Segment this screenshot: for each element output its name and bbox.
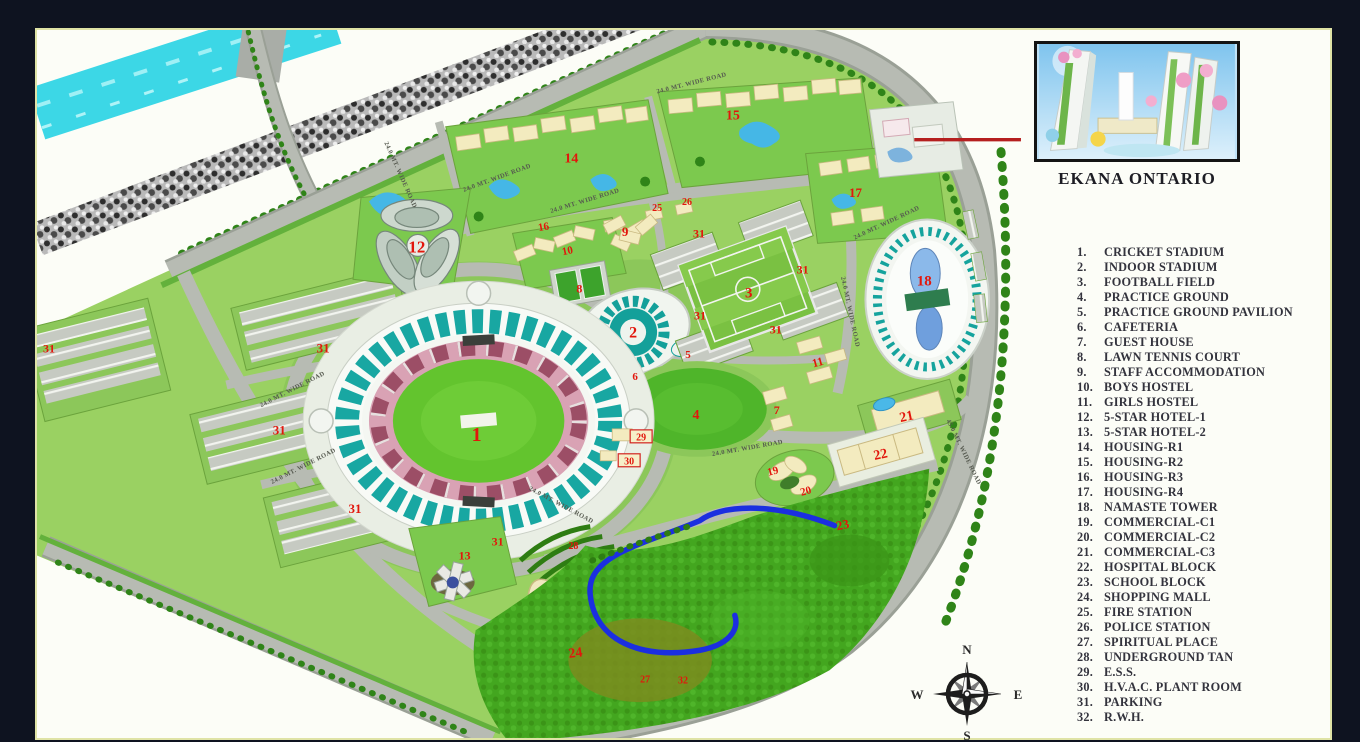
compass-east-label: E: [1014, 687, 1023, 702]
legend-item-number: 25.: [1077, 605, 1104, 620]
legend-item-number: 14.: [1077, 440, 1104, 455]
compass-rose: N S W E: [910, 640, 1025, 742]
map-marker-31: 31: [492, 535, 504, 549]
map-marker-28: 28: [568, 541, 578, 552]
legend-item-number: 32.: [1077, 710, 1104, 725]
legend-item: 1.CRICKET STADIUM: [1077, 245, 1327, 260]
map-marker-24: 24: [568, 645, 584, 662]
map-marker-26: 26: [682, 197, 692, 208]
map-marker-29: 29: [636, 432, 646, 443]
legend-item: 6.CAFETERIA: [1077, 320, 1327, 335]
legend-item: 18.NAMASTE TOWER: [1077, 500, 1327, 515]
map-marker-31: 31: [770, 322, 782, 336]
legend-item-number: 27.: [1077, 635, 1104, 650]
legend-item-label: GIRLS HOSTEL: [1104, 395, 1327, 410]
legend-item: 20.COMMERCIAL-C2: [1077, 530, 1327, 545]
legend-item-number: 12.: [1077, 410, 1104, 425]
compass-north-label: N: [962, 642, 972, 657]
legend-item-label: HOUSING-R4: [1104, 485, 1327, 500]
legend-item-number: 9.: [1077, 365, 1104, 380]
legend-item-number: 2.: [1077, 260, 1104, 275]
legend-item-number: 21.: [1077, 545, 1104, 560]
legend-item-label: SPIRITUAL PLACE: [1104, 635, 1327, 650]
map-marker-32: 32: [678, 676, 688, 687]
legend-item: 31.PARKING: [1077, 695, 1327, 710]
legend-item: 32.R.W.H.: [1077, 710, 1327, 725]
legend-item: 5.PRACTICE GROUND PAVILION: [1077, 305, 1327, 320]
legend-item: 12.5-STAR HOTEL-1: [1077, 410, 1327, 425]
legend-item: 21.COMMERCIAL-C3: [1077, 545, 1327, 560]
map-marker-31: 31: [797, 263, 809, 277]
map-marker-31: 31: [317, 341, 330, 356]
legend-item: 28.UNDERGROUND TAN: [1077, 650, 1327, 665]
legend-item-number: 23.: [1077, 575, 1104, 590]
legend-item-number: 10.: [1077, 380, 1104, 395]
legend-item: 9.STAFF ACCOMMODATION: [1077, 365, 1327, 380]
legend-item-label: E.S.S.: [1104, 665, 1327, 680]
legend-item: 16.HOUSING-R3: [1077, 470, 1327, 485]
map-marker-1: 1: [472, 424, 482, 446]
legend-item-number: 15.: [1077, 455, 1104, 470]
legend-item: 29.E.S.S.: [1077, 665, 1327, 680]
legend-item-label: POLICE STATION: [1104, 620, 1327, 635]
legend-item: 4.PRACTICE GROUND: [1077, 290, 1327, 305]
legend-item-label: STAFF ACCOMMODATION: [1104, 365, 1327, 380]
legend-item-label: SHOPPING MALL: [1104, 590, 1327, 605]
page-background: { "inset": { "caption": "EKANA ONTARIO" …: [0, 0, 1360, 738]
legend-item-number: 30.: [1077, 680, 1104, 695]
legend-item-label: HOUSING-R2: [1104, 455, 1327, 470]
legend-item-label: CAFETERIA: [1104, 320, 1327, 335]
legend-item-label: COMMERCIAL-C3: [1104, 545, 1327, 560]
legend-item-number: 7.: [1077, 335, 1104, 350]
compass-south-label: S: [963, 728, 970, 742]
legend-item: 8.LAWN TENNIS COURT: [1077, 350, 1327, 365]
legend-item: 13.5-STAR HOTEL-2: [1077, 425, 1327, 440]
map-marker-31: 31: [693, 227, 705, 241]
map-marker-5: 5: [685, 349, 691, 361]
legend-list: 1.CRICKET STADIUM2.INDOOR STADIUM3.FOOTB…: [1077, 245, 1327, 725]
map-marker-17: 17: [849, 185, 862, 200]
map-marker-14: 14: [564, 152, 578, 167]
legend-item-label: UNDERGROUND TAN: [1104, 650, 1327, 665]
towers-illustration: [1037, 44, 1237, 159]
legend-item: 10.BOYS HOSTEL: [1077, 380, 1327, 395]
legend-item-label: HOSPITAL BLOCK: [1104, 560, 1327, 575]
legend-item-label: SCHOOL BLOCK: [1104, 575, 1327, 590]
legend-item-label: PRACTICE GROUND: [1104, 290, 1327, 305]
legend-item-number: 16.: [1077, 470, 1104, 485]
map-marker-31: 31: [349, 501, 362, 516]
legend-item-label: HOUSING-R1: [1104, 440, 1327, 455]
legend-item-label: COMMERCIAL-C1: [1104, 515, 1327, 530]
legend-item-number: 8.: [1077, 350, 1104, 365]
map-marker-3: 3: [745, 285, 752, 301]
map-marker-13: 13: [459, 549, 471, 563]
legend-item: 27.SPIRITUAL PLACE: [1077, 635, 1327, 650]
legend-item-label: PARKING: [1104, 695, 1327, 710]
legend-item-number: 5.: [1077, 305, 1104, 320]
legend-item-label: R.W.H.: [1104, 710, 1327, 725]
legend-item-label: CRICKET STADIUM: [1104, 245, 1327, 260]
legend-item: 15.HOUSING-R2: [1077, 455, 1327, 470]
legend-item-number: 31.: [1077, 695, 1104, 710]
legend-item-number: 17.: [1077, 485, 1104, 500]
legend-item-number: 19.: [1077, 515, 1104, 530]
legend-item-number: 26.: [1077, 620, 1104, 635]
legend-item-number: 1.: [1077, 245, 1104, 260]
map-marker-31: 31: [273, 422, 286, 437]
legend-item-label: FOOTBALL FIELD: [1104, 275, 1327, 290]
inset-photo: [1034, 41, 1240, 162]
legend-item-label: H.V.A.C. PLANT ROOM: [1104, 680, 1327, 695]
legend-item-label: GUEST HOUSE: [1104, 335, 1327, 350]
legend-item: 7.GUEST HOUSE: [1077, 335, 1327, 350]
legend-item-number: 4.: [1077, 290, 1104, 305]
legend-item-label: BOYS HOSTEL: [1104, 380, 1327, 395]
map-marker-27: 27: [640, 675, 650, 686]
legend-item-label: LAWN TENNIS COURT: [1104, 350, 1327, 365]
map-marker-6: 6: [632, 371, 638, 383]
map-marker-4: 4: [692, 408, 699, 423]
legend-item-number: 6.: [1077, 320, 1104, 335]
legend-item-number: 24.: [1077, 590, 1104, 605]
map-marker-2: 2: [629, 325, 637, 342]
map-marker-25: 25: [652, 203, 662, 214]
legend-item-label: 5-STAR HOTEL-1: [1104, 410, 1327, 425]
legend-item-label: COMMERCIAL-C2: [1104, 530, 1327, 545]
legend-item-label: HOUSING-R3: [1104, 470, 1327, 485]
map-marker-15: 15: [726, 109, 740, 124]
legend-item: 24.SHOPPING MALL: [1077, 590, 1327, 605]
site-plan-panel: 24.0 MT. WIDE ROAD24.0 MT. WIDE ROAD24.0…: [35, 28, 1332, 740]
legend-item: 25.FIRE STATION: [1077, 605, 1327, 620]
legend-item-label: FIRE STATION: [1104, 605, 1327, 620]
legend-item-number: 29.: [1077, 665, 1104, 680]
river: [37, 30, 333, 128]
legend-item-label: NAMASTE TOWER: [1104, 500, 1327, 515]
legend-item-number: 13.: [1077, 425, 1104, 440]
legend-item: 26.POLICE STATION: [1077, 620, 1327, 635]
legend-item: 19.COMMERCIAL-C1: [1077, 515, 1327, 530]
legend-item-number: 28.: [1077, 650, 1104, 665]
map-marker-7: 7: [774, 403, 780, 417]
map-marker-18: 18: [917, 274, 932, 290]
map-marker-12: 12: [408, 237, 425, 256]
legend-item-label: 5-STAR HOTEL-2: [1104, 425, 1327, 440]
map-marker-9: 9: [622, 224, 629, 239]
legend-item-number: 3.: [1077, 275, 1104, 290]
inset-caption: EKANA ONTARIO: [1027, 169, 1247, 189]
map-marker-8: 8: [576, 281, 582, 295]
compass-west-label: W: [911, 687, 924, 702]
legend-item: 3.FOOTBALL FIELD: [1077, 275, 1327, 290]
legend-item: 22.HOSPITAL BLOCK: [1077, 560, 1327, 575]
legend-item: 11.GIRLS HOSTEL: [1077, 395, 1327, 410]
legend-item-label: PRACTICE GROUND PAVILION: [1104, 305, 1327, 320]
legend-item-label: INDOOR STADIUM: [1104, 260, 1327, 275]
legend-item: 17.HOUSING-R4: [1077, 485, 1327, 500]
map-marker-30: 30: [624, 456, 634, 467]
legend-item: 14.HOUSING-R1: [1077, 440, 1327, 455]
legend-item-number: 11.: [1077, 395, 1104, 410]
legend-item-number: 22.: [1077, 560, 1104, 575]
legend-item-number: 20.: [1077, 530, 1104, 545]
map-marker-31: 31: [694, 308, 706, 322]
legend-item: 2.INDOOR STADIUM: [1077, 260, 1327, 275]
legend-item: 30.H.V.A.C. PLANT ROOM: [1077, 680, 1327, 695]
map-marker-31: 31: [43, 341, 55, 355]
legend-item-number: 18.: [1077, 500, 1104, 515]
legend-item: 23.SCHOOL BLOCK: [1077, 575, 1327, 590]
